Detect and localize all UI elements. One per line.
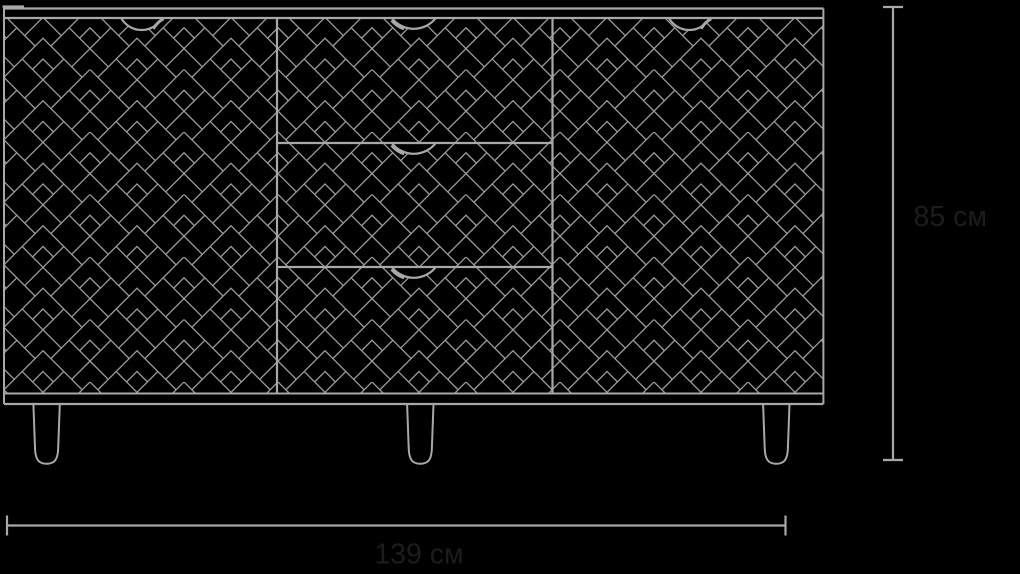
svg-text:139 см: 139 см <box>374 539 463 571</box>
svg-text:85 см: 85 см <box>914 201 987 233</box>
